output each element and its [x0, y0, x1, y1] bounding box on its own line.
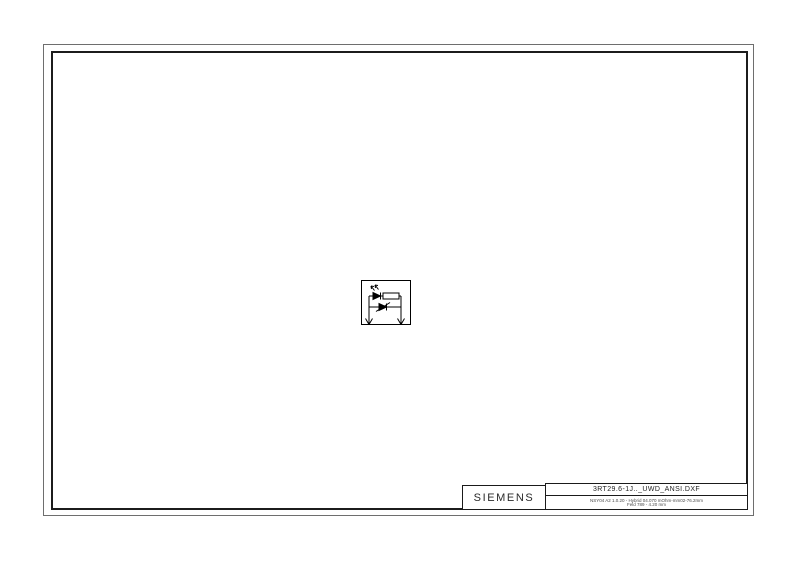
- resistor-icon: [381, 293, 402, 299]
- note-line-2: Feld 789 - 4.20 mm: [627, 503, 666, 507]
- surge-suppressor-schematic: [361, 280, 411, 325]
- drawing-filename: 3RT29.6-1J.._UWD_ANSI.DXF: [546, 484, 747, 496]
- title-block-brand-cell: SIEMENS: [462, 485, 546, 510]
- title-block-info-cell: 3RT29.6-1J.._UWD_ANSI.DXF NSY04 A2 1.0.2…: [545, 483, 748, 510]
- suppressor-diode-icon: [369, 303, 401, 312]
- drawing-sheet: SIEMENS 3RT29.6-1J.._UWD_ANSI.DXF NSY04 …: [0, 0, 800, 565]
- terminal-arrow-icon: [366, 319, 405, 325]
- title-block-notes: NSY04 A2 1.0.20 - Hybrid 04.070 mOhm-mm0…: [546, 496, 747, 509]
- brand-logo-text: SIEMENS: [474, 492, 535, 504]
- led-icon: [369, 285, 381, 300]
